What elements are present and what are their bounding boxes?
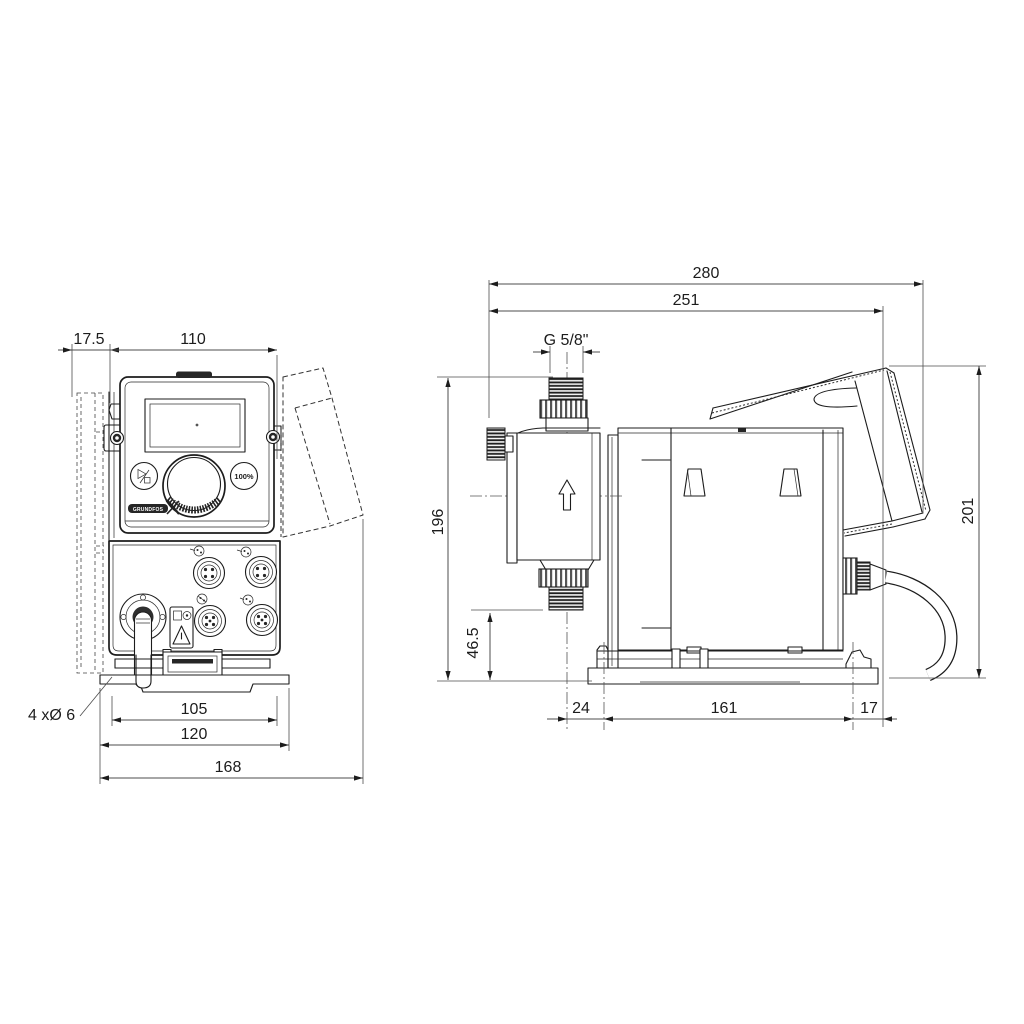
dim-label-120: 120 bbox=[181, 726, 208, 743]
dim-label-201: 201 bbox=[960, 498, 977, 525]
power-cable-side-core bbox=[886, 577, 951, 675]
dim-depth-251: 251 bbox=[489, 292, 883, 314]
warning-label bbox=[170, 607, 193, 648]
technical-drawing-page: 100% GRUNDFOS bbox=[0, 0, 1024, 1024]
screw bbox=[111, 432, 124, 445]
dim-label-24: 24 bbox=[572, 700, 590, 717]
dim-label-280: 280 bbox=[693, 265, 720, 282]
hundred-percent-button: 100% bbox=[231, 463, 258, 490]
connector-socket bbox=[247, 605, 278, 636]
side-view: 280 251 G 5/8" 196 bbox=[430, 265, 986, 730]
dim-thread-g58: G 5/8" bbox=[533, 332, 600, 355]
dim-label-17-5: 17.5 bbox=[73, 331, 104, 348]
screw bbox=[267, 431, 280, 444]
suction-valve bbox=[539, 569, 588, 610]
discharge-valve-thread bbox=[549, 378, 583, 400]
pump-dimensional-drawing: 100% GRUNDFOS bbox=[0, 0, 1024, 1024]
discharge-valve bbox=[540, 378, 588, 431]
dim-label-168: 168 bbox=[215, 759, 242, 776]
dim-total-width-168: 168 bbox=[100, 759, 363, 781]
dim-label-105: 105 bbox=[181, 701, 208, 718]
cover-clip bbox=[780, 469, 801, 496]
holes-note-label: 4 xØ 6 bbox=[28, 707, 75, 724]
rear-cable-gland bbox=[843, 558, 886, 594]
wall-plate bbox=[77, 393, 104, 673]
dim-total-depth-280: 280 bbox=[489, 265, 923, 287]
housing-top-tab bbox=[176, 372, 212, 379]
dim-height-201: 201 bbox=[960, 366, 982, 678]
pump-body bbox=[608, 428, 843, 668]
mounting-plate bbox=[100, 675, 289, 692]
strain-relief bbox=[870, 564, 886, 590]
discharge-valve-nut bbox=[540, 400, 587, 418]
head-flange bbox=[608, 435, 618, 668]
dim-plate-width-120: 120 bbox=[100, 726, 289, 748]
display-dot bbox=[196, 424, 199, 427]
dim-hole-spacing-105: 105 bbox=[112, 701, 277, 723]
phantom-cover-front bbox=[281, 368, 363, 537]
dim-label-251: 251 bbox=[673, 292, 700, 309]
suction-valve-nut bbox=[539, 569, 588, 587]
connector-socket bbox=[194, 558, 225, 589]
dim-label-110: 110 bbox=[180, 331, 206, 348]
dim-label-17: 17 bbox=[860, 700, 878, 717]
front-view: 100% GRUNDFOS bbox=[28, 331, 363, 784]
connector-socket bbox=[195, 606, 226, 637]
dim-width-110: 110 bbox=[110, 331, 277, 353]
suction-valve-thread bbox=[549, 587, 583, 610]
hundred-percent-label: 100% bbox=[234, 472, 254, 481]
dim-height-196: 196 bbox=[430, 378, 451, 680]
dim-label-196: 196 bbox=[430, 509, 447, 536]
dim-bottom-chain: 24 161 17 bbox=[547, 700, 897, 722]
head-body bbox=[517, 433, 600, 560]
start-stop-button bbox=[131, 463, 158, 490]
dim-height-46-5: 46.5 bbox=[465, 613, 493, 680]
cable-end bbox=[136, 681, 151, 688]
holes-note: 4 xØ 6 bbox=[28, 677, 112, 724]
dim-label-161: 161 bbox=[711, 700, 738, 717]
dim-label-46-5: 46.5 bbox=[465, 627, 482, 658]
cover-clip bbox=[684, 469, 705, 496]
brand-wordmark: GRUNDFOS bbox=[133, 507, 164, 513]
connector-socket bbox=[246, 557, 277, 588]
dim-label-g58: G 5/8" bbox=[544, 332, 589, 349]
